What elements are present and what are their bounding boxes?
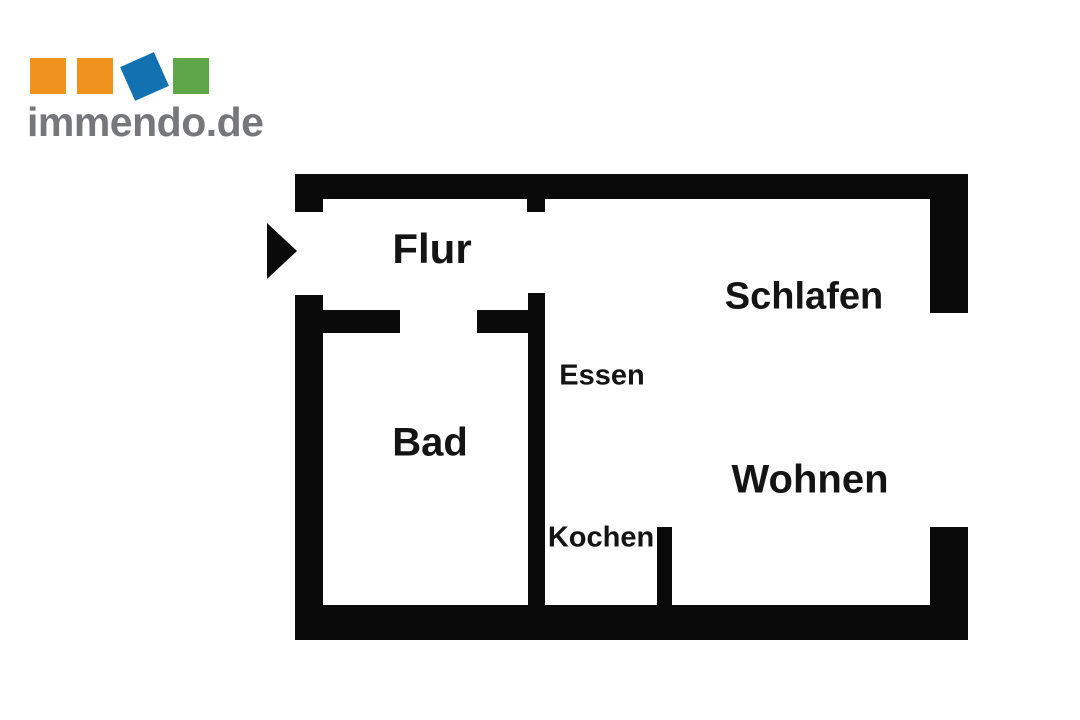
logo-green-square-icon bbox=[173, 58, 209, 94]
room-label-kochen: Kochen bbox=[548, 522, 654, 555]
wall-kochen-divider bbox=[657, 527, 672, 605]
wall-bad-top-right bbox=[477, 310, 528, 333]
logo-orange-square-2-icon bbox=[77, 58, 113, 94]
room-label-flur: Flur bbox=[392, 225, 471, 273]
wall-right-lower bbox=[930, 527, 968, 640]
wall-entry-door-jamb bbox=[295, 174, 323, 212]
wall-bad-top-left bbox=[323, 310, 400, 333]
logo-orange-square-1-icon bbox=[30, 58, 66, 94]
floorplan-page: immendo.de Flur Schlafen Essen Bad Koche… bbox=[0, 0, 1080, 720]
wall-middle-vertical bbox=[528, 293, 545, 605]
logo-wordmark: immendo.de bbox=[27, 99, 263, 146]
logo-blue-square-icon bbox=[120, 52, 169, 101]
wall-top bbox=[295, 174, 968, 199]
room-label-essen: Essen bbox=[559, 360, 644, 393]
entrance-arrow-icon bbox=[267, 223, 297, 279]
room-label-bad: Bad bbox=[392, 421, 468, 466]
wall-left bbox=[295, 295, 323, 640]
wall-flur-door-jamb bbox=[527, 198, 545, 212]
room-label-wohnen: Wohnen bbox=[731, 458, 888, 503]
room-label-schlafen: Schlafen bbox=[725, 276, 883, 319]
wall-right-upper bbox=[930, 174, 968, 313]
wall-bottom bbox=[295, 605, 968, 640]
